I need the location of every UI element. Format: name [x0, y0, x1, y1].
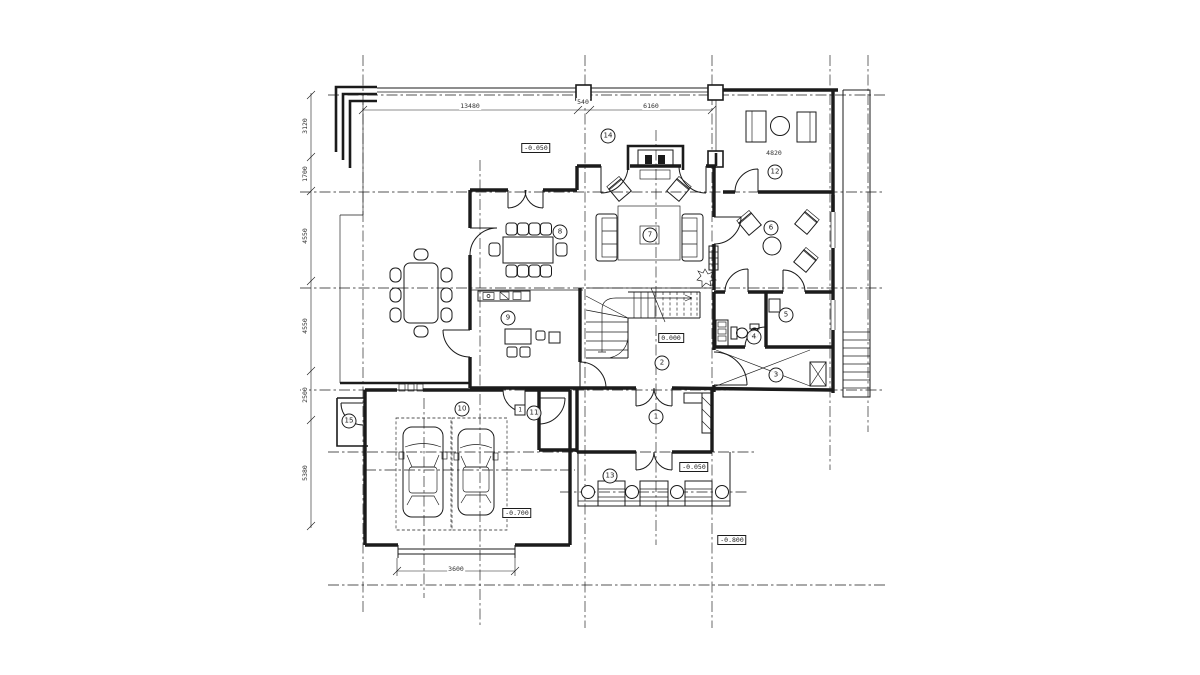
exterior-stair-right — [843, 90, 870, 397]
dim-left-3: 4550 — [301, 227, 309, 245]
sofa-right — [682, 214, 703, 261]
office-furniture — [505, 329, 560, 357]
floor-plan-canvas — [0, 0, 1200, 675]
room-label-10: 10 — [455, 402, 470, 417]
room-label-8: 8 — [553, 225, 568, 240]
car-2 — [454, 429, 498, 515]
room-label-3: 3 — [769, 368, 784, 383]
car-1 — [399, 427, 447, 517]
west-interior-wall — [443, 190, 497, 388]
elevation-marker: -0.700 — [502, 508, 531, 518]
room-label-6: 6 — [764, 221, 779, 236]
porch — [578, 452, 730, 506]
room-label-5: 5 — [779, 308, 794, 323]
elevation-marker: -0.800 — [717, 535, 746, 545]
room-label-4: 4 — [747, 330, 762, 345]
dimension-lines — [307, 91, 716, 576]
dim-room12: 4820 — [765, 149, 783, 157]
retaining-wall-steps — [336, 87, 377, 383]
terrace-north-edge — [377, 85, 723, 167]
fireplace — [628, 146, 683, 179]
dim-left-5: 2500 — [301, 386, 309, 404]
dim-garage-door: 3600 — [447, 565, 465, 573]
door-tag: 1 — [515, 405, 526, 416]
east-wall — [831, 195, 835, 393]
room-label-1: 1 — [649, 410, 664, 425]
entrance-hall — [577, 393, 712, 470]
terrace-table — [390, 249, 452, 337]
elevation-marker: 0.000 — [658, 333, 684, 343]
room12-furniture — [746, 111, 816, 142]
elevation-marker: -0.050 — [679, 462, 708, 472]
garage-walls — [365, 384, 577, 558]
room-label-7: 7 — [643, 228, 658, 243]
room-label-12: 12 — [768, 165, 783, 180]
dim-top-3: 6160 — [642, 102, 660, 110]
armchair-left — [607, 176, 631, 201]
kitchen-counter — [478, 291, 530, 301]
study-furniture — [737, 209, 819, 272]
elevation-marker: -0.050 — [521, 143, 550, 153]
storage-shelf — [769, 299, 780, 312]
armchair-right — [667, 176, 691, 201]
staircase-main — [586, 288, 700, 358]
room-label-15: 15 — [342, 414, 357, 429]
sofa-left — [596, 214, 617, 261]
dim-top-1: 13480 — [459, 102, 481, 110]
room-label-14: 14 — [601, 129, 616, 144]
dim-left-1: 3120 — [301, 117, 309, 135]
floor-plan-sheet: 1 2 3 4 5 6 7 8 9 10 11 12 13 14 15 -0.0… — [0, 0, 1200, 675]
dim-left-4: 4550 — [301, 317, 309, 335]
room-label-11: 11 — [527, 406, 542, 421]
room-label-2: 2 — [655, 356, 670, 371]
dim-left-6: 5380 — [301, 464, 309, 482]
dim-top-2: 540 — [576, 98, 590, 106]
dim-left-2: 1700 — [301, 165, 309, 183]
east-wing-walls — [714, 269, 833, 347]
room-label-13: 13 — [603, 469, 618, 484]
room-label-9: 9 — [501, 311, 516, 326]
